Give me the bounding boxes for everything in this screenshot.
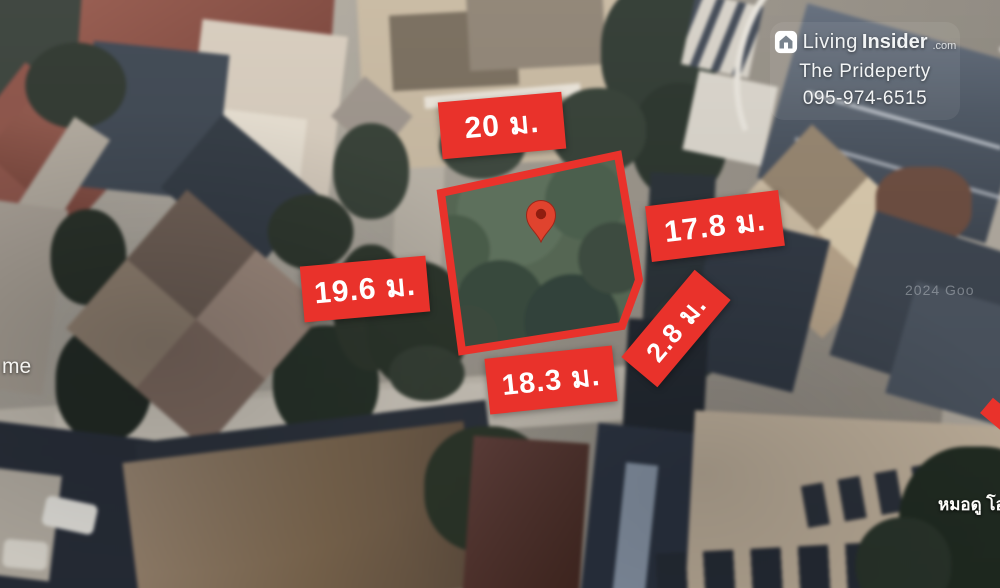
map-canvas: 20 ม. 17.8 ม. 19.6 ม. 2.8 ม. 18.3 ม. me … <box>0 0 1000 588</box>
map-place-label-left: me <box>2 355 31 379</box>
brand-row: Living Insider .com <box>774 30 956 54</box>
dimension-label-left: 19.6 ม. <box>300 256 430 323</box>
living-insider-logo-icon <box>774 30 798 54</box>
map-copyright-fragment: 2024 Goo <box>905 282 975 298</box>
map-place-label-bottom-right: หมอดู โอพ <box>938 491 1000 518</box>
brand-living: Living <box>803 31 858 54</box>
brand-tld: .com <box>933 40 957 52</box>
watermark-phone: 095-974-6515 <box>774 88 956 110</box>
dimension-label-top: 20 ม. <box>438 92 566 160</box>
brand-insider: Insider <box>862 31 928 54</box>
watermark-card: Living Insider .com The Prideperty 095-9… <box>770 22 960 120</box>
watermark-company: The Prideperty <box>774 61 956 83</box>
